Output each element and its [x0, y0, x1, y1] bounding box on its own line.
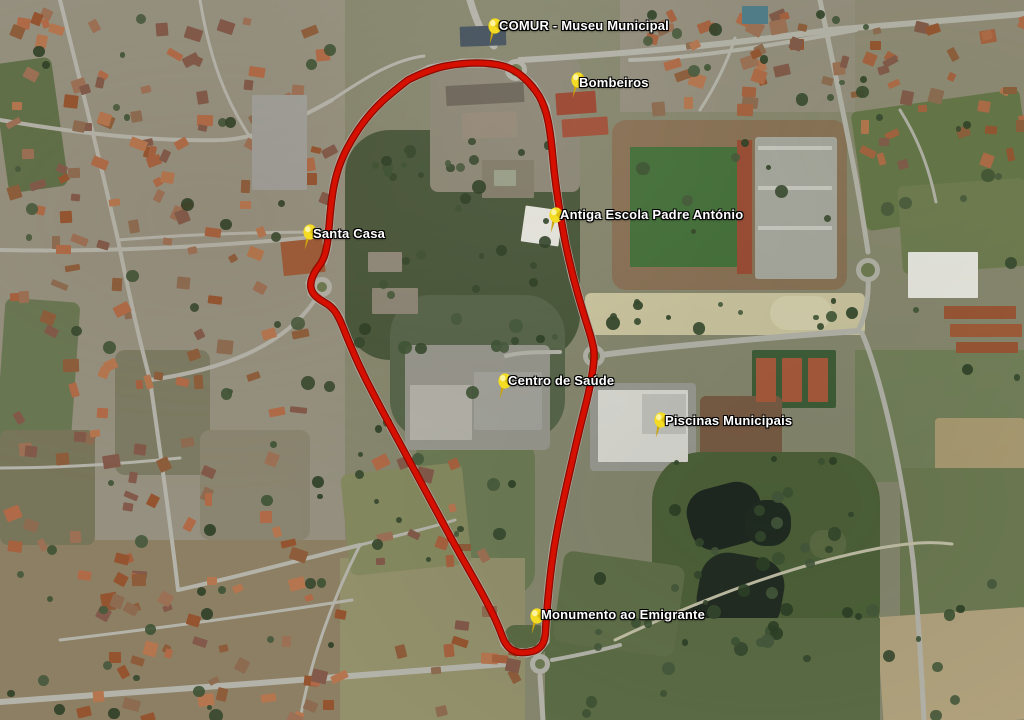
placemark-label[interactable]: Centro de Saúde [508, 373, 614, 388]
satellite-map-canvas[interactable]: COMUR - Museu Municipal Bombeiros Antiga… [0, 0, 1024, 720]
route-path [311, 63, 594, 653]
placemark-label[interactable]: Bombeiros [579, 75, 649, 90]
placemark-label[interactable]: Monumento ao Emigrante [541, 607, 705, 622]
placemark-label[interactable]: COMUR - Museu Municipal [499, 18, 669, 33]
route-overlay [0, 0, 1024, 720]
placemark-label[interactable]: Piscinas Municipais [665, 413, 792, 428]
placemark-label[interactable]: Antiga Escola Padre António [560, 207, 743, 222]
placemark-label[interactable]: Santa Casa [313, 226, 385, 241]
